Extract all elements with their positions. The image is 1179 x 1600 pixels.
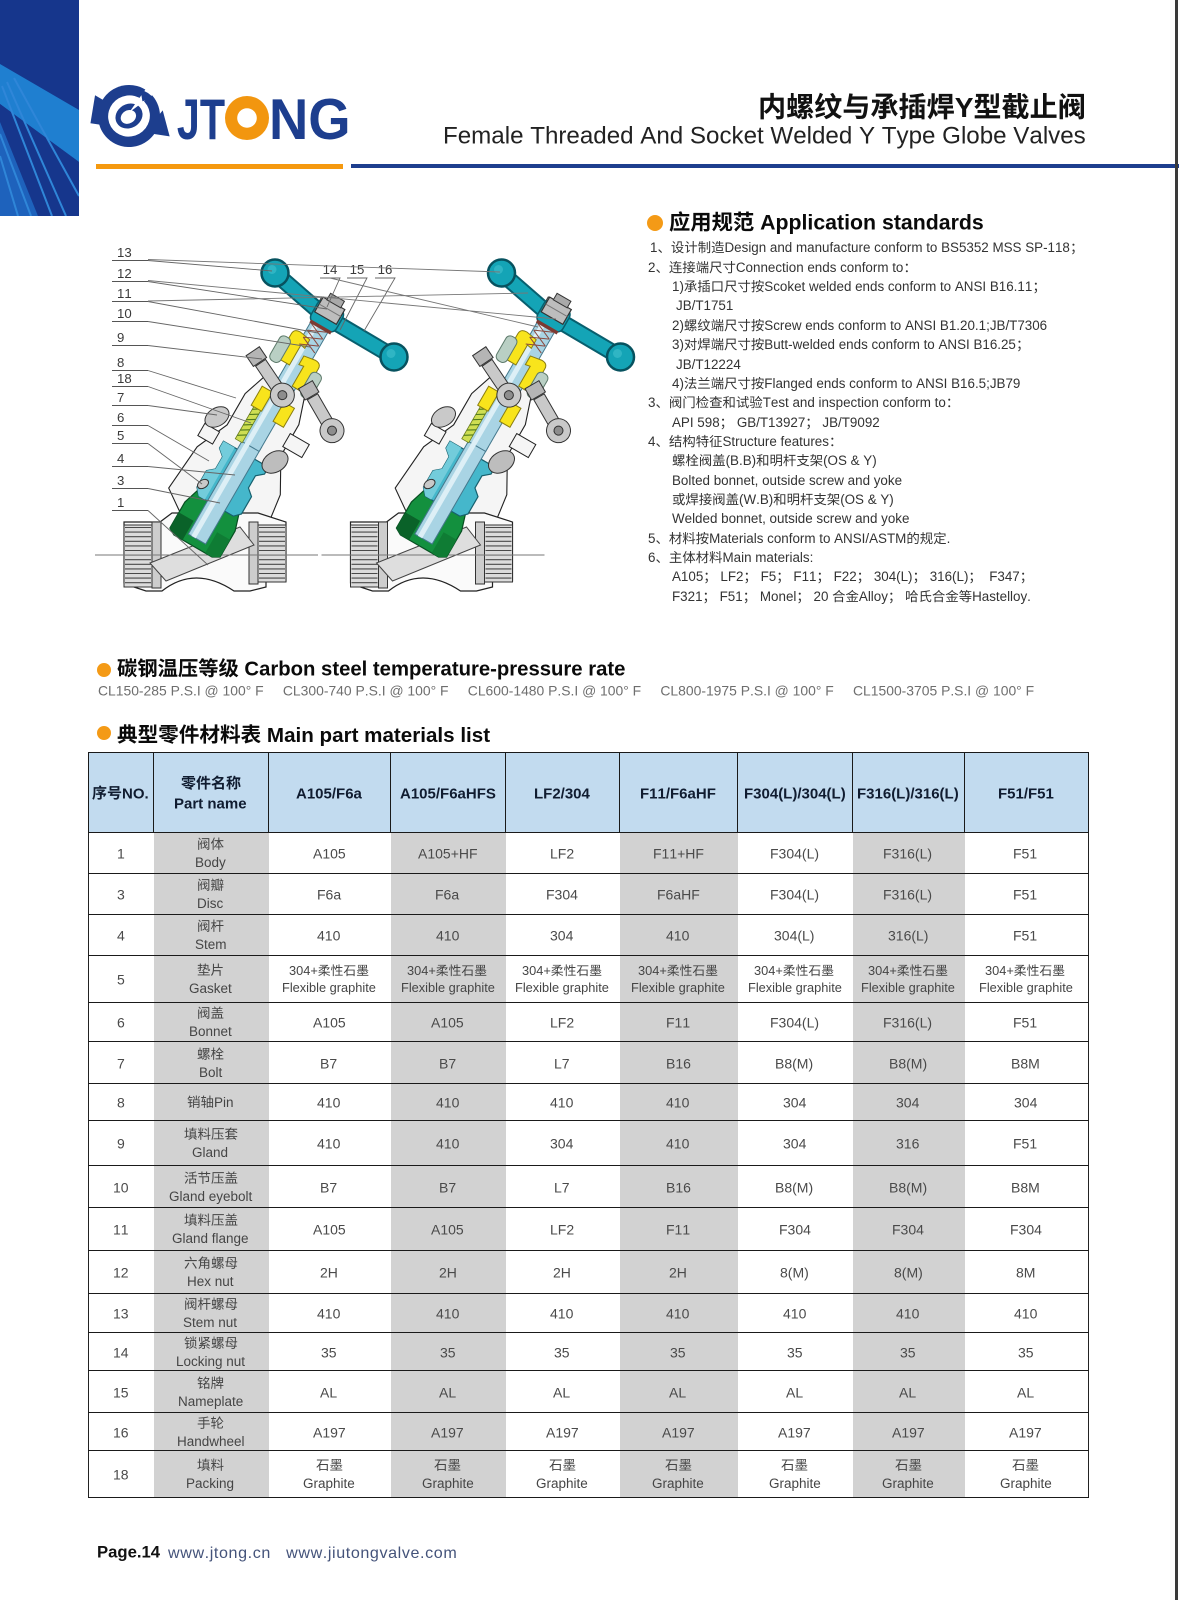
svg-text:Female Threaded And Socket Wel: Female Threaded And Socket Welded Y Type… xyxy=(443,123,1086,150)
svg-text:Hastelloy.: Hastelloy. xyxy=(972,589,1031,604)
svg-text:LF2: LF2 xyxy=(717,570,744,585)
svg-text:A105/F6aHFS: A105/F6aHFS xyxy=(400,785,496,802)
svg-text:15: 15 xyxy=(350,262,365,277)
svg-text:A197: A197 xyxy=(892,1424,925,1440)
svg-text:CL150-285 P.S.I @ 100° F C: CL150-285 P.S.I @ 100° F CL300-740 P.S.I… xyxy=(98,683,1034,699)
svg-text:8M: 8M xyxy=(1016,1264,1035,1280)
svg-text:Part name: Part name xyxy=(174,795,247,812)
svg-text:F304(L): F304(L) xyxy=(770,845,819,861)
svg-text:9: 9 xyxy=(117,330,124,345)
svg-text:A105: A105 xyxy=(431,1014,464,1030)
svg-text:35: 35 xyxy=(321,1344,337,1360)
svg-text:2H: 2H xyxy=(320,1264,338,1280)
svg-text:2H: 2H xyxy=(669,1264,687,1280)
svg-text:6: 6 xyxy=(117,1014,125,1030)
svg-text:410: 410 xyxy=(550,1305,574,1321)
svg-text:5: 5 xyxy=(117,971,125,987)
svg-text:Gland flange: Gland flange xyxy=(172,1231,249,1246)
svg-text:3: 3 xyxy=(117,886,125,902)
svg-text:3): 3) xyxy=(672,337,684,352)
svg-text:Scoket welded ends conform to: Scoket welded ends conform to ANSI B16.1… xyxy=(764,279,1032,294)
svg-text:(W.B): (W.B) xyxy=(739,492,773,507)
svg-text:Carbon steel temperature-press: Carbon steel temperature-pressure rate xyxy=(239,659,626,681)
svg-text:35: 35 xyxy=(554,1344,570,1360)
svg-text:Main materials:: Main materials: xyxy=(723,550,814,565)
svg-text:Gland: Gland xyxy=(192,1145,228,1160)
svg-text:F51: F51 xyxy=(1013,1014,1037,1030)
svg-text:LF2: LF2 xyxy=(550,1014,574,1030)
svg-text:18: 18 xyxy=(113,1466,129,1482)
svg-text:2): 2) xyxy=(672,318,684,333)
svg-text:A105: A105 xyxy=(672,570,703,585)
svg-text:B8M: B8M xyxy=(1011,1055,1040,1071)
svg-text:F316(L): F316(L) xyxy=(883,886,932,902)
svg-text:Pin: Pin xyxy=(214,1095,234,1110)
svg-text:410: 410 xyxy=(666,1094,690,1110)
svg-text:8(M): 8(M) xyxy=(780,1264,809,1280)
svg-text:F304(L): F304(L) xyxy=(770,1014,819,1030)
svg-text:1): 1) xyxy=(672,279,684,294)
svg-text:F304: F304 xyxy=(1010,1221,1042,1237)
svg-text:304: 304 xyxy=(1014,1094,1038,1110)
svg-text:18: 18 xyxy=(117,371,132,386)
svg-text:F321: F321 xyxy=(672,589,703,604)
svg-text:410: 410 xyxy=(550,1094,574,1110)
svg-text:35: 35 xyxy=(900,1344,916,1360)
svg-text:11: 11 xyxy=(117,286,132,301)
svg-text:A105/F6a: A105/F6a xyxy=(296,785,363,802)
svg-text:A197: A197 xyxy=(662,1424,695,1440)
svg-text:www.jtong.cn www.jiutongvalv: www.jtong.cn www.jiutongvalve.com xyxy=(168,1544,457,1562)
svg-text:F51: F51 xyxy=(716,589,743,604)
svg-text:304+: 304+ xyxy=(638,963,667,978)
svg-text:AL: AL xyxy=(320,1384,337,1400)
svg-text:F51: F51 xyxy=(1013,886,1037,902)
svg-text:8: 8 xyxy=(117,1094,125,1110)
svg-text:Application standards: Application standards xyxy=(754,210,984,234)
svg-text:35: 35 xyxy=(670,1344,686,1360)
svg-text:B8(M): B8(M) xyxy=(775,1055,813,1071)
svg-text:2H: 2H xyxy=(553,1264,571,1280)
svg-text:B7: B7 xyxy=(439,1179,456,1195)
svg-text:A105: A105 xyxy=(431,1221,464,1237)
svg-text:A197: A197 xyxy=(546,1424,579,1440)
svg-text:A105: A105 xyxy=(313,1014,346,1030)
svg-text:304(L): 304(L) xyxy=(774,927,814,943)
svg-text:410: 410 xyxy=(317,1135,341,1151)
svg-text:304+: 304+ xyxy=(985,963,1014,978)
svg-text:A197: A197 xyxy=(778,1424,811,1440)
svg-text:F316(L): F316(L) xyxy=(883,845,932,861)
svg-text:(OS & Y): (OS & Y) xyxy=(823,453,877,468)
svg-text:Handwheel: Handwheel xyxy=(177,1433,245,1448)
svg-text:F11: F11 xyxy=(666,1014,690,1030)
svg-text:Page.14: Page.14 xyxy=(97,1543,161,1562)
svg-text:AL: AL xyxy=(1017,1384,1034,1400)
svg-text:B7: B7 xyxy=(439,1055,456,1071)
svg-text:304+: 304+ xyxy=(522,963,551,978)
svg-text:L7: L7 xyxy=(554,1055,570,1071)
svg-text:Bolted bonnet, outside screw a: Bolted bonnet, outside screw and yoke xyxy=(672,473,902,488)
svg-text:410: 410 xyxy=(436,1305,460,1321)
svg-text:F304: F304 xyxy=(892,1221,924,1237)
svg-text:35: 35 xyxy=(440,1344,456,1360)
svg-text:1: 1 xyxy=(117,495,124,510)
svg-text:7: 7 xyxy=(117,390,124,405)
svg-text:304+: 304+ xyxy=(289,963,318,978)
svg-text:F316(L): F316(L) xyxy=(883,1014,932,1030)
svg-text:Alloy: Alloy xyxy=(859,589,888,604)
svg-text:Gasket: Gasket xyxy=(189,981,232,996)
svg-text:15: 15 xyxy=(113,1384,129,1400)
svg-text:JT: JT xyxy=(177,94,225,148)
svg-text:B8M: B8M xyxy=(1011,1179,1040,1195)
svg-text:4: 4 xyxy=(117,927,125,943)
svg-text:14: 14 xyxy=(113,1344,129,1360)
svg-text:LF2: LF2 xyxy=(550,1221,574,1237)
svg-text:A197: A197 xyxy=(1009,1424,1042,1440)
svg-text:410: 410 xyxy=(317,1305,341,1321)
svg-text:410: 410 xyxy=(666,927,690,943)
svg-text:JB/T9092: JB/T9092 xyxy=(819,415,880,430)
svg-text:A197: A197 xyxy=(313,1424,346,1440)
svg-text:F347: F347 xyxy=(982,570,1020,585)
svg-text:AL: AL xyxy=(786,1384,803,1400)
svg-text:Stem: Stem xyxy=(195,937,227,952)
svg-text:A105+HF: A105+HF xyxy=(418,845,478,861)
svg-text:12: 12 xyxy=(117,266,132,281)
svg-text:A105: A105 xyxy=(313,1221,346,1237)
svg-text:5: 5 xyxy=(117,428,124,443)
svg-text:Test and inspection conform to: Test and inspection conform to xyxy=(763,395,946,410)
svg-text:NG: NG xyxy=(269,94,351,148)
svg-text:410: 410 xyxy=(896,1305,920,1321)
svg-text:GB/T13927: GB/T13927 xyxy=(733,415,805,430)
svg-text:304: 304 xyxy=(896,1094,920,1110)
svg-text:3: 3 xyxy=(117,473,124,488)
svg-text:Packing: Packing xyxy=(186,1476,234,1491)
svg-text:F11: F11 xyxy=(666,1221,690,1237)
svg-text:410: 410 xyxy=(783,1305,807,1321)
svg-text:Graphite: Graphite xyxy=(652,1476,704,1491)
svg-text:LF2: LF2 xyxy=(550,845,574,861)
svg-text:Graphite: Graphite xyxy=(1000,1476,1052,1491)
svg-text:Structure features: Structure features xyxy=(723,434,830,449)
svg-text:AL: AL xyxy=(899,1384,916,1400)
svg-text:10: 10 xyxy=(113,1179,129,1195)
svg-text:Gland eyebolt: Gland eyebolt xyxy=(169,1188,253,1203)
svg-text:304: 304 xyxy=(783,1135,807,1151)
svg-text:L7: L7 xyxy=(554,1179,570,1195)
svg-text:F51/F51: F51/F51 xyxy=(998,785,1054,802)
svg-text:Main part materials list: Main part materials list xyxy=(261,724,490,747)
svg-text:Stem nut: Stem nut xyxy=(183,1315,237,1330)
svg-text:Connection ends conform to: Connection ends conform to xyxy=(736,260,903,275)
svg-text:F11+HF: F11+HF xyxy=(653,845,704,861)
svg-text:AL: AL xyxy=(553,1384,570,1400)
svg-text:20: 20 xyxy=(810,589,832,604)
svg-text:316(L): 316(L) xyxy=(888,927,928,943)
svg-text:410: 410 xyxy=(436,1094,460,1110)
svg-text:Design and manufacture conform: Design and manufacture conform to BS5352… xyxy=(725,240,1070,255)
svg-text:2H: 2H xyxy=(439,1264,457,1280)
svg-text:F11/F6aHF: F11/F6aHF xyxy=(640,785,716,802)
svg-text:10: 10 xyxy=(117,306,132,321)
svg-text:410: 410 xyxy=(317,927,341,943)
svg-text:B16: B16 xyxy=(666,1179,691,1195)
svg-text:F304(L)/304(L): F304(L)/304(L) xyxy=(744,785,846,802)
svg-text:A197: A197 xyxy=(431,1424,464,1440)
svg-text:JB/T12224: JB/T12224 xyxy=(676,357,741,372)
svg-text:F5: F5 xyxy=(757,570,776,585)
svg-text:12: 12 xyxy=(113,1264,129,1280)
svg-text:Flexible graphite: Flexible graphite xyxy=(861,980,955,995)
svg-text:35: 35 xyxy=(1018,1344,1034,1360)
svg-text:NO.: NO. xyxy=(122,785,149,802)
svg-text:F6a: F6a xyxy=(317,886,341,902)
svg-text:Graphite: Graphite xyxy=(536,1476,588,1491)
svg-text:B8(M): B8(M) xyxy=(889,1179,927,1195)
svg-text:.: . xyxy=(947,531,951,546)
svg-text:B7: B7 xyxy=(320,1179,337,1195)
svg-text:Bonnet: Bonnet xyxy=(189,1024,232,1039)
svg-text:F6a: F6a xyxy=(435,886,459,902)
svg-text:F11: F11 xyxy=(790,570,817,585)
svg-text:Bolt: Bolt xyxy=(199,1064,223,1079)
svg-text:F22: F22 xyxy=(830,570,857,585)
svg-text:14: 14 xyxy=(323,262,338,277)
svg-text:B16: B16 xyxy=(666,1055,691,1071)
svg-text:B8(M): B8(M) xyxy=(889,1055,927,1071)
svg-text:A105: A105 xyxy=(313,845,346,861)
svg-text:316: 316 xyxy=(896,1135,920,1151)
svg-text:410: 410 xyxy=(317,1094,341,1110)
svg-text:4): 4) xyxy=(672,376,684,391)
svg-text:304+: 304+ xyxy=(868,963,897,978)
svg-text:API 598: API 598 xyxy=(672,415,720,430)
svg-text:Welded bonnet, outside screw a: Welded bonnet, outside screw and yoke xyxy=(672,511,909,526)
svg-text:Body: Body xyxy=(195,855,226,870)
svg-text:13: 13 xyxy=(117,245,132,260)
svg-text:AL: AL xyxy=(669,1384,686,1400)
svg-text:8(M): 8(M) xyxy=(894,1264,923,1280)
svg-text:Flexible graphite: Flexible graphite xyxy=(282,980,376,995)
svg-text:304+: 304+ xyxy=(754,963,783,978)
svg-text:16: 16 xyxy=(113,1424,129,1440)
svg-text:F6aHF: F6aHF xyxy=(657,886,700,902)
svg-text:F304: F304 xyxy=(546,886,578,902)
svg-text:F51: F51 xyxy=(1013,927,1037,943)
svg-text:LF2/304: LF2/304 xyxy=(534,785,591,802)
svg-text:410: 410 xyxy=(666,1305,690,1321)
svg-text:Locking nut: Locking nut xyxy=(176,1353,245,1368)
svg-text:Nameplate: Nameplate xyxy=(178,1393,243,1408)
svg-text:Graphite: Graphite xyxy=(882,1476,934,1491)
svg-text:(OS & Y): (OS & Y) xyxy=(840,492,894,507)
svg-text:Disc: Disc xyxy=(197,896,223,911)
svg-text:Flexible graphite: Flexible graphite xyxy=(631,980,725,995)
svg-text:Materials conform to ANSI/ASTM: Materials conform to ANSI/ASTM xyxy=(709,531,906,546)
svg-text:F304: F304 xyxy=(779,1221,811,1237)
svg-text:Flexible graphite: Flexible graphite xyxy=(401,980,495,995)
svg-text:Screw ends conform to ANSI B1.: Screw ends conform to ANSI B1.20.1;JB/T7… xyxy=(764,318,1047,333)
svg-text:Graphite: Graphite xyxy=(422,1476,474,1491)
svg-text:11: 11 xyxy=(113,1221,129,1237)
svg-text:F51: F51 xyxy=(1013,845,1037,861)
svg-text:Graphite: Graphite xyxy=(303,1476,355,1491)
svg-text:Flexible graphite: Flexible graphite xyxy=(979,980,1073,995)
svg-text:Hex nut: Hex nut xyxy=(187,1274,234,1289)
svg-text:F304(L): F304(L) xyxy=(770,886,819,902)
svg-text:AL: AL xyxy=(439,1384,456,1400)
svg-text:(B.B): (B.B) xyxy=(726,453,757,468)
svg-text:9: 9 xyxy=(117,1135,125,1151)
svg-text:13: 13 xyxy=(113,1305,129,1321)
svg-text:410: 410 xyxy=(436,1135,460,1151)
svg-text:8: 8 xyxy=(117,355,124,370)
svg-text:B8(M): B8(M) xyxy=(775,1179,813,1195)
svg-text:304: 304 xyxy=(783,1094,807,1110)
svg-text:316(L): 316(L) xyxy=(926,570,968,585)
svg-text:7: 7 xyxy=(117,1055,125,1071)
svg-text:F316(L)/316(L): F316(L)/316(L) xyxy=(857,785,959,802)
svg-text:16: 16 xyxy=(378,262,393,277)
svg-text:4: 4 xyxy=(117,451,124,466)
svg-text:304+: 304+ xyxy=(407,963,436,978)
svg-text:Flexible graphite: Flexible graphite xyxy=(515,980,609,995)
svg-text:35: 35 xyxy=(787,1344,803,1360)
svg-text:304: 304 xyxy=(550,927,574,943)
svg-text:JB/T1751: JB/T1751 xyxy=(676,299,733,314)
svg-text:410: 410 xyxy=(436,927,460,943)
svg-text:6: 6 xyxy=(117,410,124,425)
svg-text:B7: B7 xyxy=(320,1055,337,1071)
svg-text:410: 410 xyxy=(1014,1305,1038,1321)
svg-text:Flanged ends conform to ANSI B: Flanged ends conform to ANSI B16.5;JB79 xyxy=(764,376,1020,391)
svg-text:Monel: Monel xyxy=(756,589,796,604)
svg-text:304: 304 xyxy=(550,1135,574,1151)
svg-text:Graphite: Graphite xyxy=(769,1476,821,1491)
svg-text:F51: F51 xyxy=(1013,1135,1037,1151)
svg-text:304(L): 304(L) xyxy=(870,570,912,585)
svg-text:410: 410 xyxy=(666,1135,690,1151)
svg-text:Flexible graphite: Flexible graphite xyxy=(748,980,842,995)
svg-text:Butt-welded ends conform to AN: Butt-welded ends conform to ANSI B16.25 xyxy=(764,337,1016,352)
svg-text:1: 1 xyxy=(117,845,125,861)
